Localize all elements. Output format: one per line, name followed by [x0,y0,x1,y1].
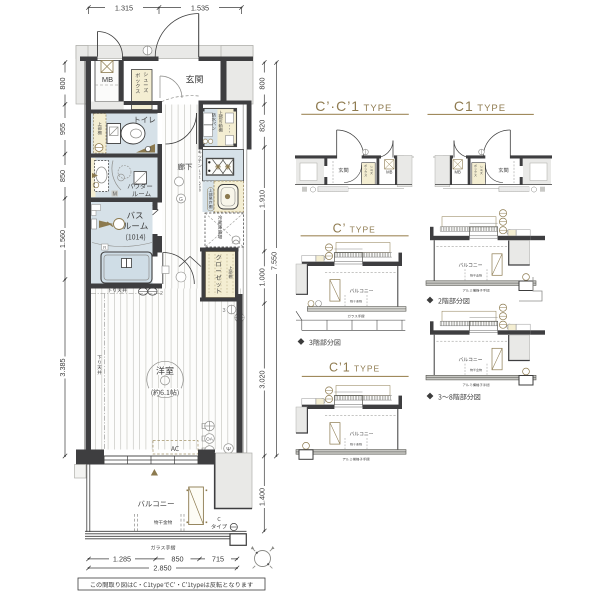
svg-text:1.560: 1.560 [58,230,67,248]
svg-text:1.910: 1.910 [257,190,266,208]
svg-text:2: 2 [160,291,163,297]
svg-text:800: 800 [58,77,67,89]
svg-text:850: 850 [171,555,183,564]
svg-text:1.400: 1.400 [257,488,266,506]
svg-text:3.385: 3.385 [58,358,67,376]
svg-text:850: 850 [58,170,67,182]
svg-text:1.000: 1.000 [257,268,266,286]
svg-text:820: 820 [257,120,266,132]
svg-text:1.315: 1.315 [115,3,133,12]
svg-text:3: 3 [222,308,225,314]
svg-text:7.550: 7.550 [269,252,278,270]
svg-text:G: G [179,197,183,203]
svg-text:3.020: 3.020 [257,370,266,388]
svg-text:OA: OA [206,437,214,442]
svg-text:MB: MB [455,170,461,175]
svg-text:C’1 TYPE: C’1 TYPE [329,361,380,375]
svg-text:M: M [113,192,118,198]
svg-text:1.535: 1.535 [191,3,209,12]
svg-text:955: 955 [58,123,67,135]
svg-text:MB: MB [386,170,392,175]
svg-text:MB: MB [102,75,113,84]
svg-text:715: 715 [212,555,224,564]
svg-text:Ψ: Ψ [226,447,231,453]
svg-text:2.850: 2.850 [153,564,171,573]
svg-text:C’ TYPE: C’ TYPE [333,222,376,236]
svg-text:1.285: 1.285 [113,555,131,564]
svg-text:800: 800 [257,77,266,89]
